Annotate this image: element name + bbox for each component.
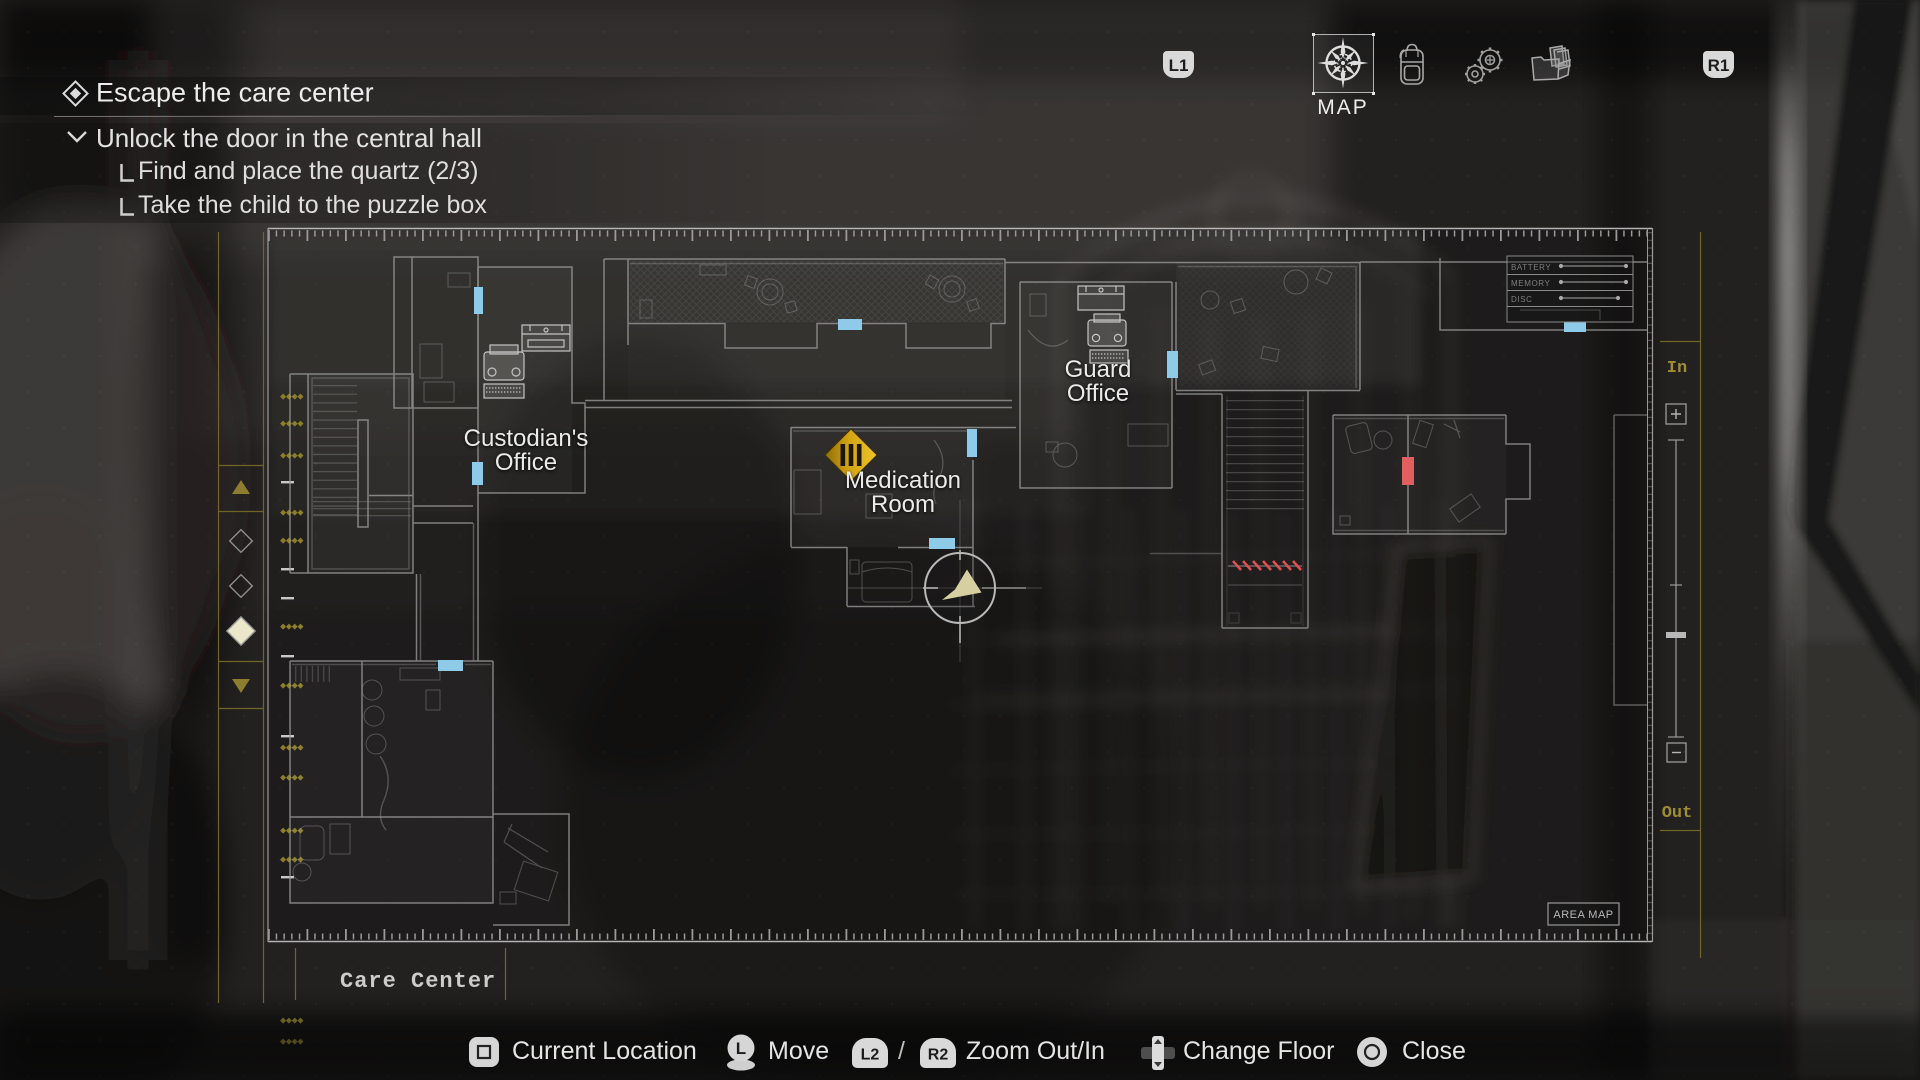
svg-text:Current Location: Current Location	[512, 1037, 697, 1065]
svg-text:MAP: MAP	[1317, 96, 1369, 119]
svg-text:R1: R1	[1708, 56, 1730, 75]
svg-text:Unlock the door in the central: Unlock the door in the central hall	[96, 123, 482, 153]
svg-text:/: /	[898, 1037, 905, 1065]
svg-text:L1: L1	[1169, 56, 1189, 75]
svg-text:Change Floor: Change Floor	[1183, 1037, 1334, 1065]
svg-text:Close: Close	[1402, 1037, 1466, 1065]
svg-text:Move: Move	[768, 1037, 829, 1065]
svg-text:Find and place the quartz (2/3: Find and place the quartz (2/3)	[138, 157, 478, 185]
svg-text:R2: R2	[928, 1047, 949, 1064]
svg-text:L2: L2	[861, 1047, 880, 1064]
svg-text:Escape the care center: Escape the care center	[96, 78, 374, 108]
svg-text:Take the child to the puzzle b: Take the child to the puzzle box	[138, 191, 487, 219]
svg-text:Zoom Out/In: Zoom Out/In	[966, 1037, 1105, 1065]
